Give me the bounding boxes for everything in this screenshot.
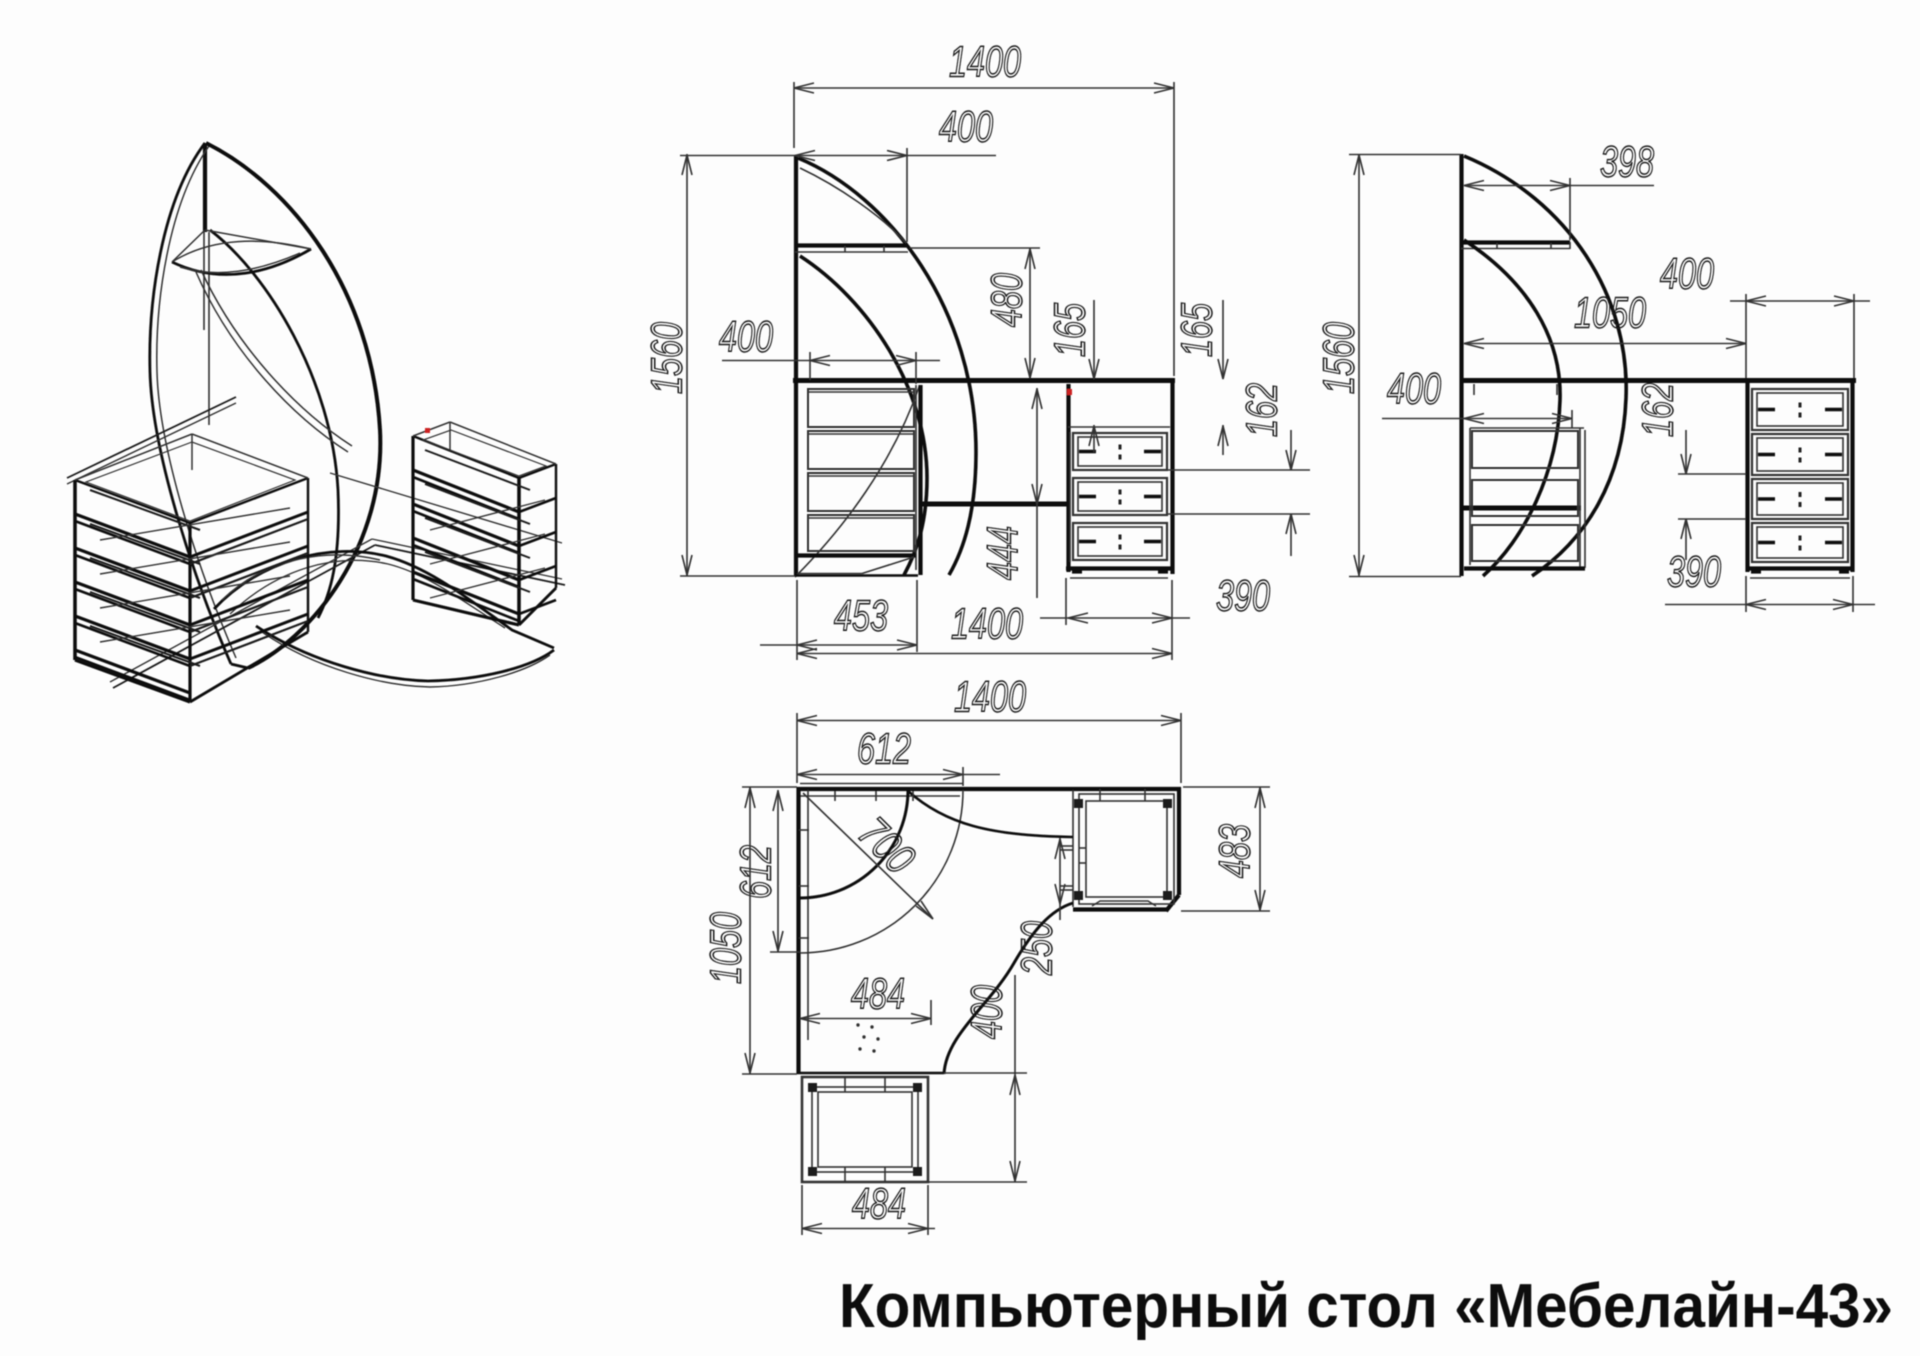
svg-text:250: 250 xyxy=(1013,921,1062,976)
svg-text:400: 400 xyxy=(963,985,1012,1039)
svg-text:484: 484 xyxy=(852,1180,906,1229)
svg-text:453: 453 xyxy=(834,592,888,641)
svg-text:165: 165 xyxy=(1173,303,1222,357)
svg-text:1400: 1400 xyxy=(951,600,1023,649)
svg-text:390: 390 xyxy=(1667,548,1721,597)
svg-text:612: 612 xyxy=(857,725,911,774)
svg-text:1400: 1400 xyxy=(954,673,1026,722)
svg-text:390: 390 xyxy=(1216,572,1270,621)
svg-text:483: 483 xyxy=(1211,824,1260,878)
svg-text:400: 400 xyxy=(719,313,773,362)
svg-text:400: 400 xyxy=(1387,365,1441,414)
svg-text:162: 162 xyxy=(1634,383,1683,437)
svg-text:480: 480 xyxy=(983,273,1032,327)
svg-text:1050: 1050 xyxy=(702,912,751,984)
svg-text:400: 400 xyxy=(1660,250,1714,299)
svg-text:484: 484 xyxy=(851,970,905,1019)
svg-text:1560: 1560 xyxy=(643,322,692,394)
svg-text:400: 400 xyxy=(939,103,993,152)
svg-text:1560: 1560 xyxy=(1315,322,1364,394)
svg-text:1050: 1050 xyxy=(1574,289,1646,338)
svg-text:398: 398 xyxy=(1600,138,1654,187)
svg-text:612: 612 xyxy=(732,845,781,899)
svg-text:444: 444 xyxy=(979,526,1028,580)
svg-text:165: 165 xyxy=(1046,303,1095,357)
svg-text:1400: 1400 xyxy=(949,38,1021,87)
svg-text:Компьютерный стол «Мебелайн-43: Компьютерный стол «Мебелайн-43» xyxy=(839,1272,1893,1341)
svg-text:162: 162 xyxy=(1238,383,1287,437)
